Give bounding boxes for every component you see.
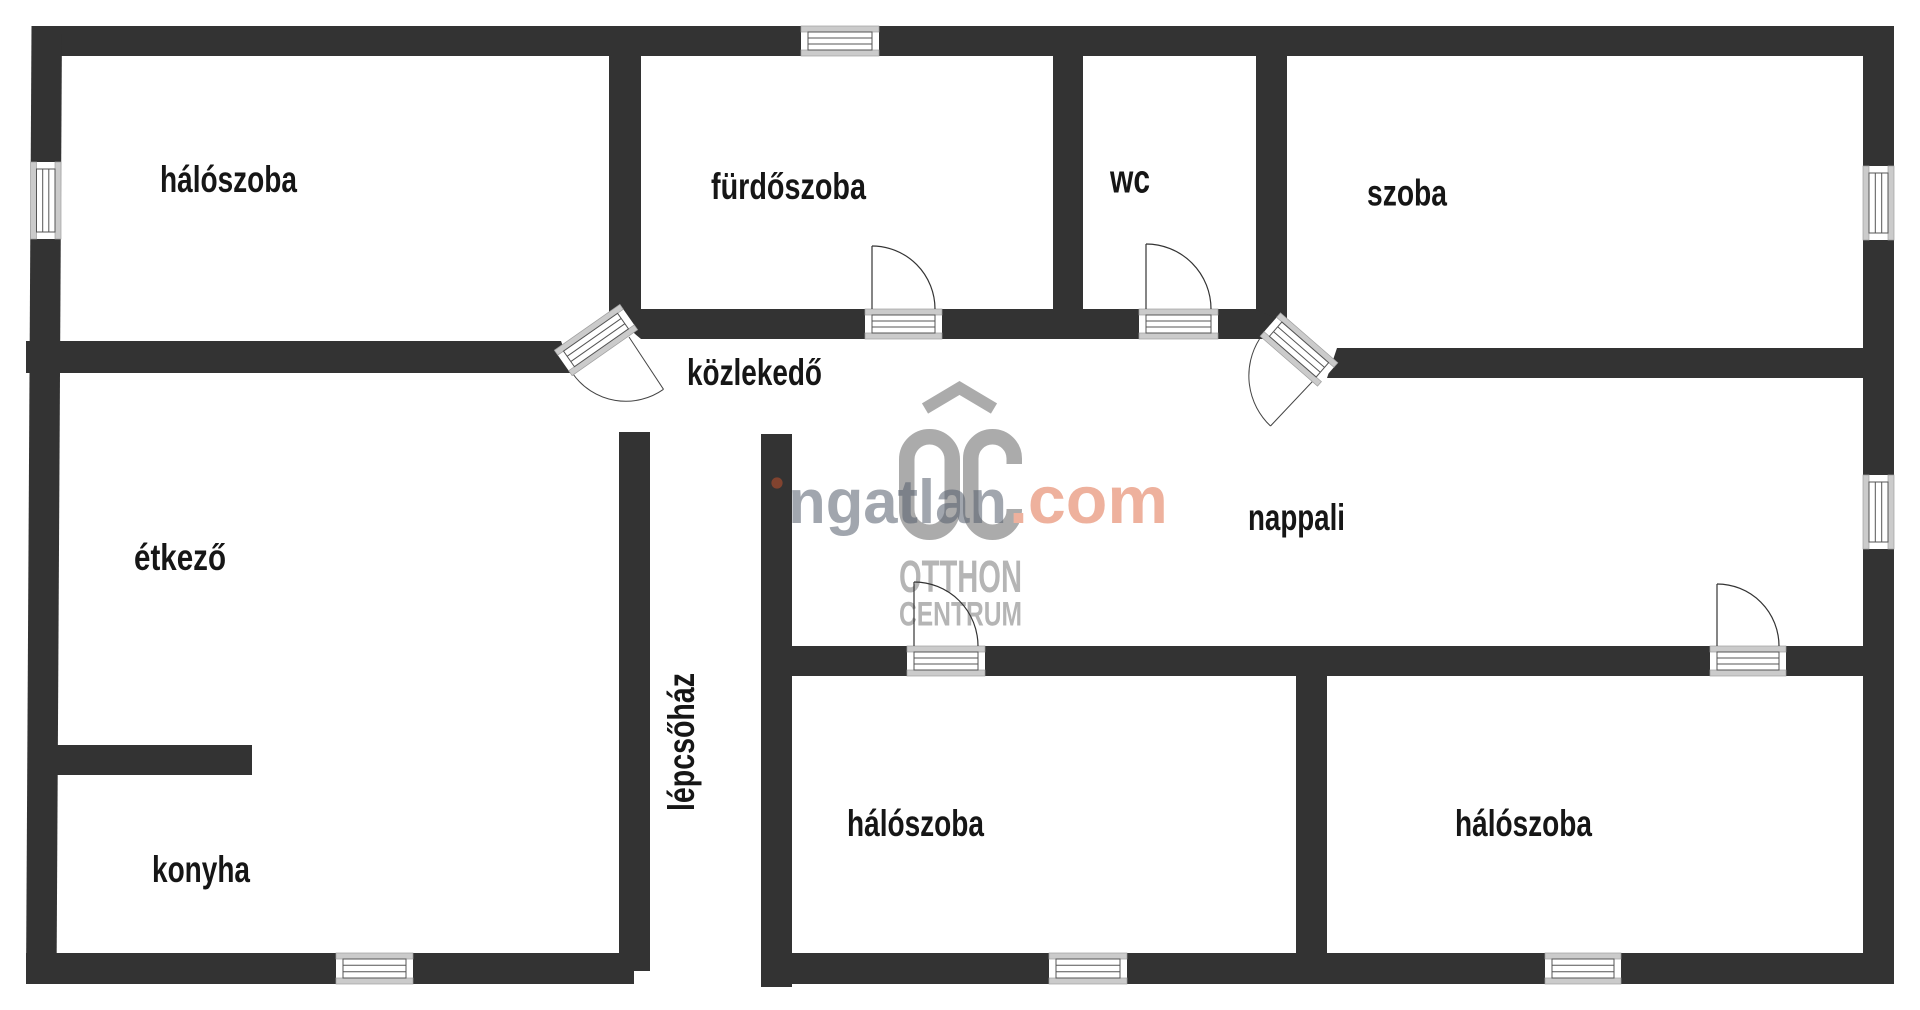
svg-text:szoba: szoba xyxy=(1367,173,1447,214)
svg-text:hálószoba: hálószoba xyxy=(1455,803,1592,844)
svg-text:hálószoba: hálószoba xyxy=(160,159,297,200)
svg-text:étkező: étkező xyxy=(134,537,226,578)
svg-text:lépcsőház: lépcsőház xyxy=(661,673,702,811)
svg-text:.com: .com xyxy=(1009,463,1168,538)
svg-text:OTTHON: OTTHON xyxy=(899,551,1022,602)
svg-text:ingatlan: ingatlan xyxy=(771,468,1007,537)
svg-text:nappali: nappali xyxy=(1248,497,1345,538)
svg-text:konyha: konyha xyxy=(152,849,250,890)
svg-text:wc: wc xyxy=(1109,158,1150,202)
svg-text:fürdőszoba: fürdőszoba xyxy=(711,166,866,207)
svg-text:közlekedő: közlekedő xyxy=(687,352,822,393)
svg-text:hálószoba: hálószoba xyxy=(847,803,984,844)
